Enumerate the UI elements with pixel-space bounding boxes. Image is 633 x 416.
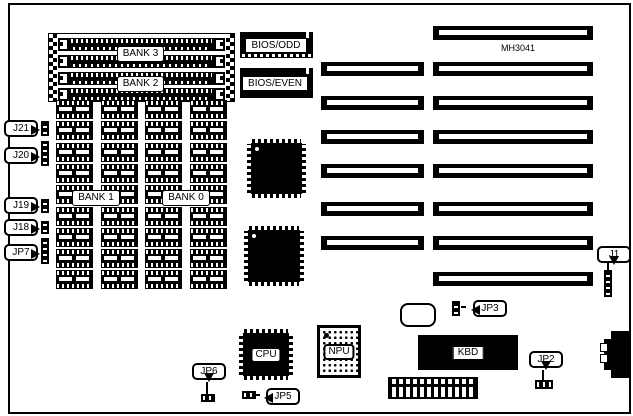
kbd-controller-chip: KBD bbox=[418, 335, 518, 370]
bank0-label: BANK 0 bbox=[162, 190, 210, 206]
cpu-chip: CPU bbox=[239, 329, 293, 380]
jp5-label: JP5 bbox=[274, 391, 291, 402]
bank1-text: BANK 1 bbox=[78, 192, 114, 203]
isa-slot-left-segment bbox=[321, 96, 424, 110]
jp3-label: JP3 bbox=[481, 303, 498, 314]
callout-j18: J18 bbox=[4, 219, 38, 236]
bank3-text: BANK 3 bbox=[123, 48, 159, 59]
pointer-icon bbox=[466, 305, 480, 315]
isa-slot-left-segment bbox=[321, 130, 424, 144]
din-notch-2 bbox=[600, 354, 608, 363]
chip-body bbox=[251, 143, 302, 194]
pin1-dot bbox=[324, 333, 329, 338]
j18-label: J18 bbox=[13, 222, 29, 233]
j20-label: J20 bbox=[13, 150, 29, 161]
callout-j20: J20 bbox=[4, 147, 38, 164]
bank2-text: BANK 2 bbox=[123, 78, 159, 89]
bank2-label: BANK 2 bbox=[117, 76, 164, 92]
pointer-icon bbox=[609, 256, 619, 270]
npu-socket: NPU bbox=[317, 325, 361, 378]
model-number: MH3041 bbox=[483, 43, 553, 53]
keyboard-din-connector bbox=[611, 331, 629, 378]
pointer-icon bbox=[31, 249, 45, 259]
pointer-icon bbox=[31, 224, 45, 234]
power-connector-slots bbox=[392, 387, 474, 397]
pointer-icon bbox=[31, 125, 45, 135]
pointer-icon bbox=[259, 393, 273, 403]
isa-slot-right-segment bbox=[433, 130, 593, 144]
callout-j1: J1 bbox=[597, 246, 631, 263]
pin1-dot bbox=[252, 234, 256, 238]
gate-array-chip-1 bbox=[247, 139, 306, 198]
kbd-label: KBD bbox=[453, 346, 484, 360]
power-connector bbox=[388, 377, 478, 399]
callout-jp3: JP3 bbox=[473, 300, 507, 317]
callout-jp5: JP5 bbox=[266, 388, 300, 405]
gate-array-chip-2 bbox=[244, 226, 304, 286]
callout-jp6: JP6 bbox=[192, 363, 226, 380]
cpu-label: CPU bbox=[250, 347, 281, 363]
isa-slot-left-segment bbox=[321, 62, 424, 76]
callout-jp2: JP2 bbox=[529, 351, 563, 368]
power-connector-pins bbox=[392, 379, 474, 384]
callout-jp7: JP7 bbox=[4, 244, 38, 261]
isa-slot-right-segment bbox=[433, 202, 593, 216]
bank1-label: BANK 1 bbox=[72, 190, 120, 206]
isa-slot-right-segment bbox=[433, 272, 593, 286]
j21-label: J21 bbox=[13, 123, 29, 134]
connector-j1 bbox=[604, 270, 612, 297]
pointer-icon bbox=[31, 202, 45, 212]
isa-slot-right-segment bbox=[433, 236, 593, 250]
pointer-icon bbox=[204, 373, 214, 387]
chip-body bbox=[248, 230, 300, 282]
jumper-jp3 bbox=[452, 301, 460, 316]
isa-slot-left-segment bbox=[321, 236, 424, 250]
din-notch-1 bbox=[600, 343, 608, 352]
callout-j19: J19 bbox=[4, 197, 38, 214]
pointer-icon bbox=[31, 152, 45, 162]
bank0-text: BANK 0 bbox=[168, 192, 204, 203]
isa-slot-right-segment bbox=[433, 62, 593, 76]
callout-j21: J21 bbox=[4, 120, 38, 137]
npu-label: NPU bbox=[323, 344, 354, 360]
jumper-jp2 bbox=[535, 380, 553, 389]
isa-slot-left-segment bbox=[321, 202, 424, 216]
isa-slot-left-segment bbox=[321, 164, 424, 178]
chip-body: CPU bbox=[243, 333, 289, 376]
pointer-icon bbox=[541, 361, 551, 375]
pin1-dot bbox=[255, 147, 259, 151]
jumper-jp6 bbox=[201, 394, 215, 402]
isa-slot-right-segment bbox=[433, 164, 593, 178]
j19-label: J19 bbox=[13, 200, 29, 211]
bank3-label: BANK 3 bbox=[117, 46, 164, 62]
isa-slot-right-segment bbox=[433, 26, 593, 40]
motherboard-diagram: BANK 3 BANK 2 BANK 1 BANK 0 BIOS/ODD BIO… bbox=[0, 0, 633, 416]
jp7-label: JP7 bbox=[12, 247, 29, 258]
crystal-outline bbox=[400, 303, 436, 327]
isa-slot-right-segment bbox=[433, 96, 593, 110]
